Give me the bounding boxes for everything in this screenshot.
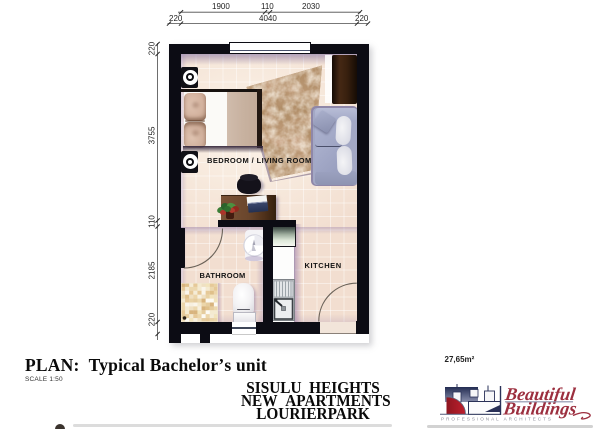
svg-text:PROFESSIONAL ARCHITECTS: PROFESSIONAL ARCHITECTS (441, 417, 553, 422)
